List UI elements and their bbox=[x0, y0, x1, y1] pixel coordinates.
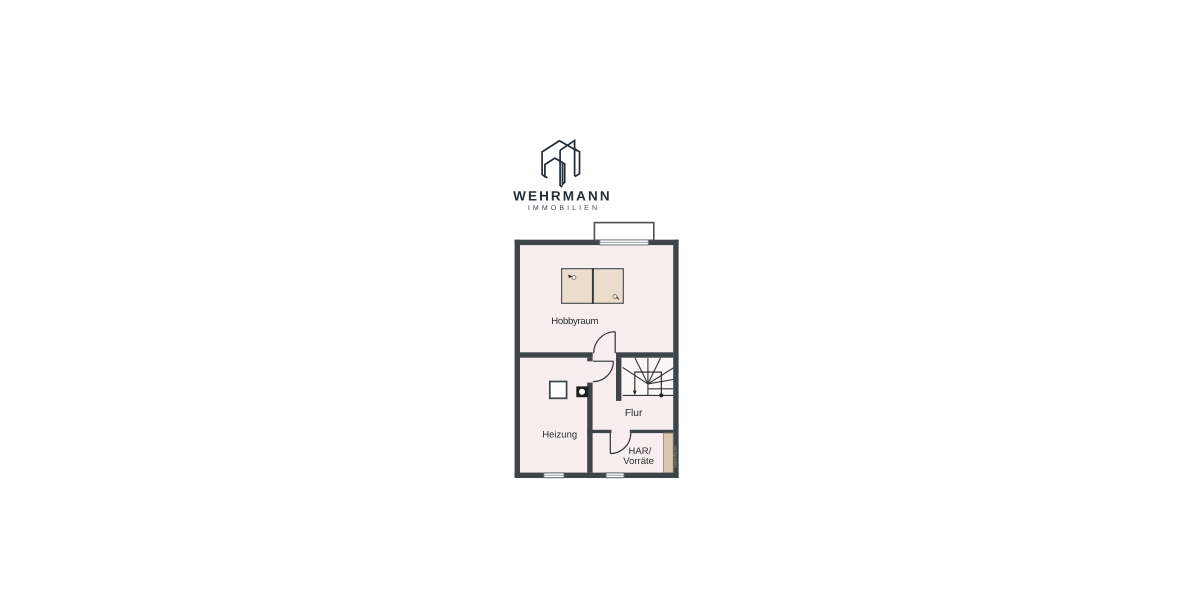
svg-text:WEHRMANN: WEHRMANN bbox=[513, 188, 612, 203]
svg-text:Flur: Flur bbox=[625, 408, 643, 419]
svg-text:Nebenfläche: Nebenfläche bbox=[673, 445, 678, 468]
svg-text:IMMOBILIEN: IMMOBILIEN bbox=[528, 205, 600, 212]
svg-text:Heizung: Heizung bbox=[542, 430, 577, 441]
svg-text:Hobbyraum: Hobbyraum bbox=[551, 316, 598, 327]
svg-text:Vorräte: Vorräte bbox=[623, 456, 654, 467]
